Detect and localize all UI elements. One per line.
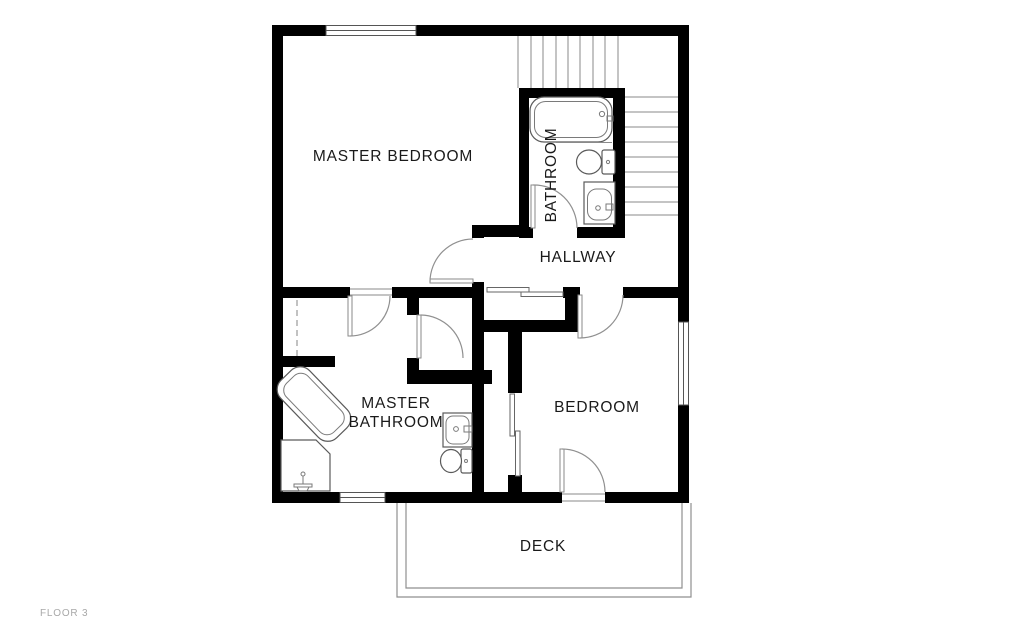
bathroom-label: BATHROOM — [543, 128, 560, 223]
wall — [577, 227, 625, 238]
door-leaf — [578, 295, 582, 338]
sliding-door — [521, 292, 563, 297]
door-swing-arc — [421, 315, 463, 358]
bedroom-label: BEDROOM — [554, 399, 640, 416]
master-bathroom-label-line2: BATHROOM — [349, 414, 444, 431]
floor-plan-canvas: MASTER BEDROOM BATHROOM HALLWAY MASTER B… — [0, 0, 1024, 639]
master-bedroom-label: MASTER BEDROOM — [313, 148, 473, 165]
deck-label: DECK — [520, 538, 566, 555]
wall — [605, 492, 689, 503]
toilet-icon — [577, 150, 602, 174]
door-leaf — [531, 185, 535, 228]
wall — [272, 287, 350, 298]
shower-icon — [281, 440, 330, 491]
wall — [407, 370, 492, 384]
sliding-door — [516, 431, 521, 476]
sliding-door — [487, 288, 529, 293]
wall — [416, 25, 689, 36]
wall — [272, 492, 340, 503]
door-swing-arc — [430, 239, 473, 282]
toilet-icon — [461, 449, 472, 473]
hallway-label: HALLWAY — [540, 249, 617, 266]
wall — [272, 25, 283, 503]
wall — [623, 287, 678, 298]
wall — [272, 356, 335, 367]
bathtub-icon — [272, 361, 356, 446]
wall — [678, 405, 689, 503]
door-leaf — [417, 315, 421, 358]
door-swing-arc — [580, 295, 623, 338]
door-leaf — [430, 279, 473, 283]
wall — [519, 227, 533, 238]
wall — [472, 282, 484, 503]
toilet-icon — [441, 450, 462, 473]
door-swing-arc — [562, 449, 605, 492]
wall — [519, 88, 529, 238]
door-swing-arc — [350, 296, 390, 336]
room-labels: MASTER BEDROOM BATHROOM HALLWAY MASTER B… — [40, 128, 640, 619]
wall — [392, 287, 473, 298]
door-leaf — [348, 296, 352, 336]
door-leaf — [560, 449, 564, 492]
wall — [407, 291, 419, 315]
floor-number-label: FLOOR 3 — [40, 608, 88, 619]
wall — [508, 323, 522, 393]
wall — [480, 320, 565, 332]
floor-plan-svg: MASTER BEDROOM BATHROOM HALLWAY MASTER B… — [0, 0, 1024, 639]
toilet-icon — [602, 150, 615, 174]
sink-icon — [584, 182, 615, 224]
wall — [508, 475, 522, 503]
wall — [472, 225, 484, 238]
sliding-door — [510, 394, 515, 436]
master-bathroom-label-line1: MASTER — [361, 395, 430, 412]
wall — [678, 25, 689, 322]
